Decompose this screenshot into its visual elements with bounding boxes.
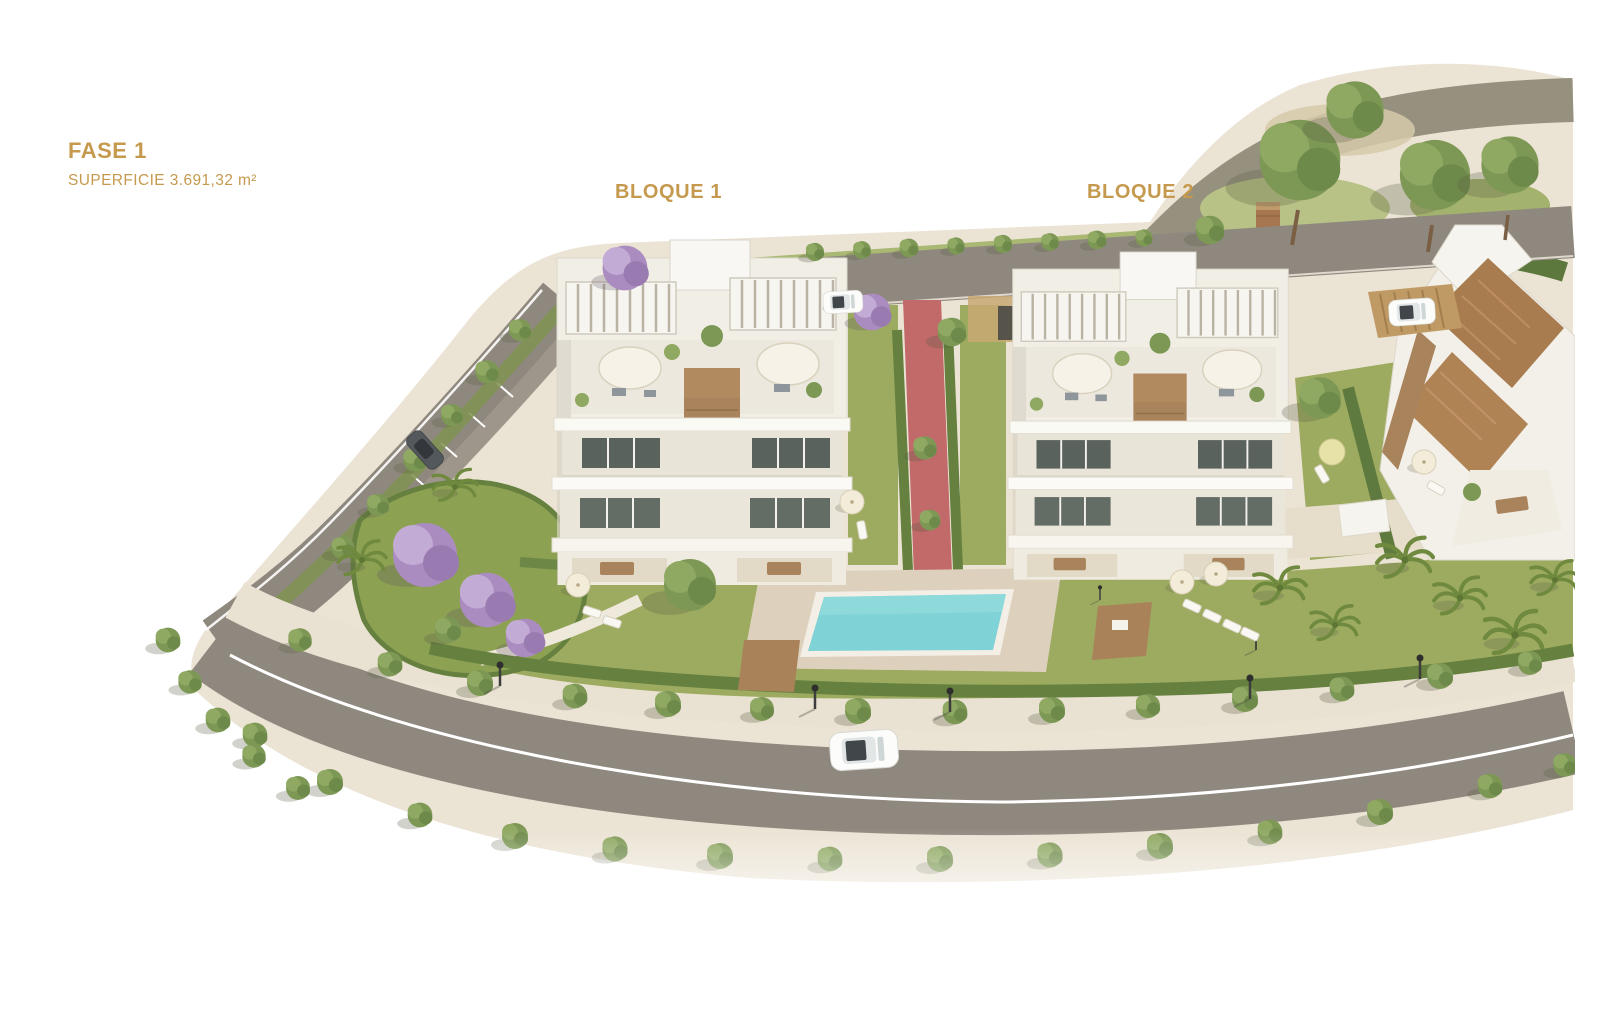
bloque-1-building [552,240,852,585]
wood-deck-right [1092,602,1152,660]
bloque-2-building [1008,252,1293,580]
car-in-carport [1387,297,1436,326]
car-top-road [822,290,864,314]
site-plan-render [0,0,1600,1024]
phase-title: FASE 1 [68,138,147,164]
phase-surface-area: SUPERFICIE 3.691,32 m² [68,172,257,190]
car-main-road [827,729,899,772]
bottom-fade [0,828,1600,1024]
bloque-1-label: BLOQUE 1 [615,181,722,204]
bloque-2-label: BLOQUE 2 [1087,181,1194,204]
wood-deck-left [738,640,800,692]
white-platform [1338,499,1390,537]
site-plan-page: FASE 1 SUPERFICIE 3.691,32 m² BLOQUE 1 B… [0,0,1600,1024]
